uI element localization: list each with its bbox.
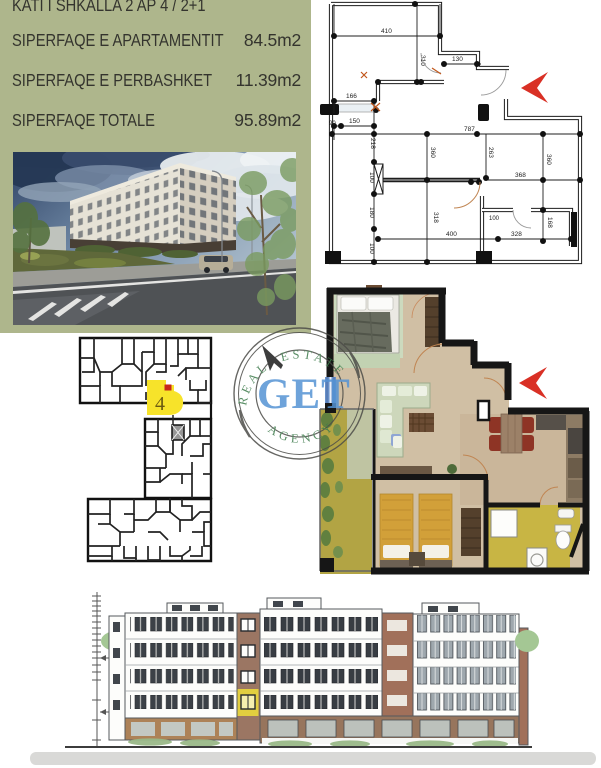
svg-text:787: 787 [464,126,475,133]
svg-text:100: 100 [368,243,375,254]
svg-text:166: 166 [346,93,357,100]
svg-text:130: 130 [452,56,463,63]
svg-text:180: 180 [368,207,375,218]
svg-text:AGENCY: AGENCY [266,418,339,446]
svg-text:368: 368 [515,172,526,179]
svg-text:360: 360 [429,147,436,158]
svg-text:100: 100 [368,172,375,183]
svg-text:360: 360 [545,154,552,165]
svg-text:100: 100 [489,216,500,222]
svg-text:410: 410 [381,28,392,35]
svg-text:263: 263 [487,147,494,158]
svg-text:90: 90 [329,121,336,127]
svg-text:328: 328 [511,231,522,238]
svg-text:218: 218 [369,138,376,149]
svg-text:GET: GET [257,371,351,418]
svg-text:150: 150 [349,118,360,125]
svg-text:4: 4 [155,393,165,415]
svg-text:168: 168 [546,217,553,228]
svg-text:400: 400 [446,231,457,238]
svg-text:318: 318 [432,212,439,223]
